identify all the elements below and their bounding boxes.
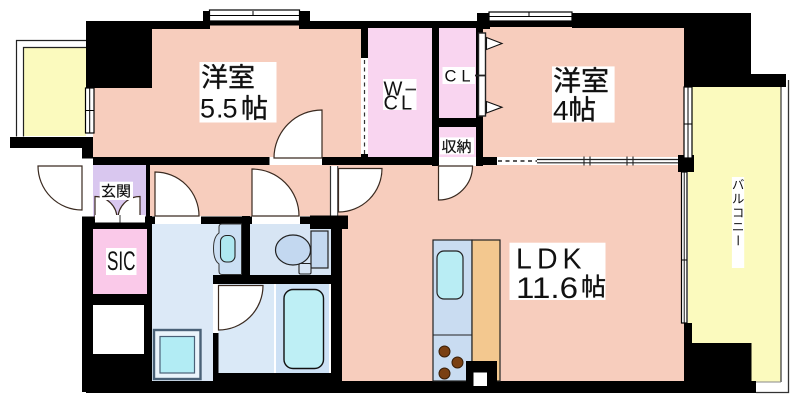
svg-text:4: 4: [553, 95, 569, 126]
svg-text:CL: CL: [445, 67, 476, 85]
svg-text:5.5: 5.5: [200, 94, 238, 124]
svg-text:SIC: SIC: [107, 246, 136, 276]
svg-text:LDK: LDK: [516, 244, 582, 276]
svg-text:11.6: 11.6: [516, 272, 578, 305]
svg-text:CL: CL: [384, 92, 416, 114]
